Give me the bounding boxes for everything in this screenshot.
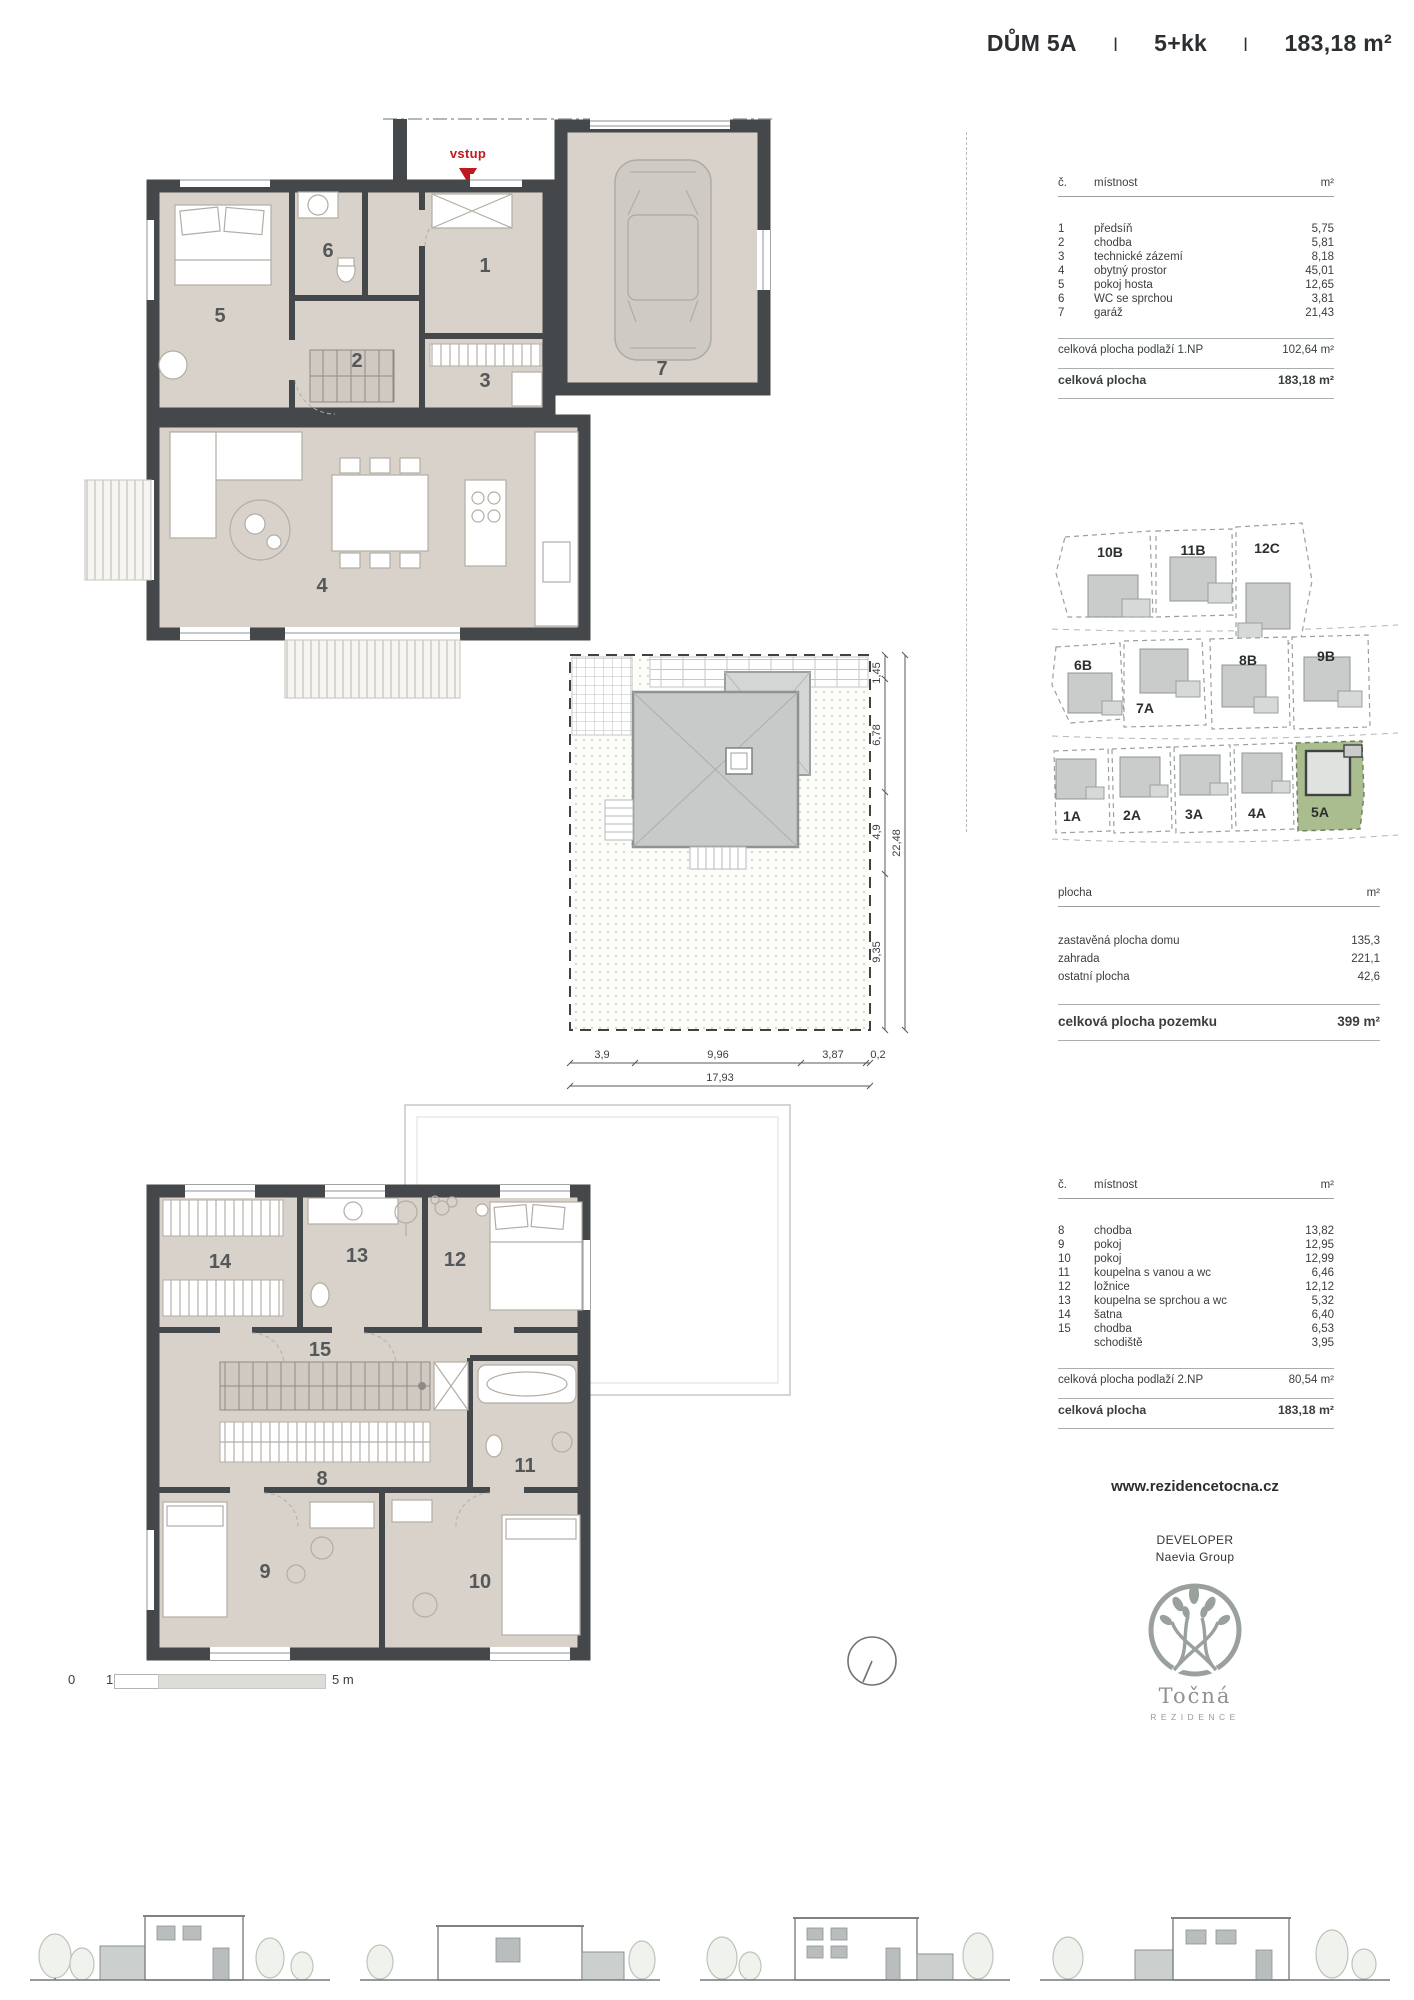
house-total-area: 183,18 m²	[1284, 30, 1392, 57]
total-value: 399 m²	[1280, 1015, 1380, 1029]
total-row: celková plocha 183,18 m²	[1058, 1399, 1334, 1422]
svg-text:12C: 12C	[1254, 540, 1280, 556]
table-row: 8chodba13,82	[1058, 1224, 1334, 1238]
lot-8B: 8B	[1210, 637, 1290, 729]
table-rows: 1předsíň5,75 2chodba5,81 3technické záze…	[1058, 222, 1334, 320]
upper-floor-body: 14 13 12 15 8 11 9 10	[141, 1185, 590, 1660]
divider	[1058, 1428, 1334, 1429]
table-row: 6WC se sprchou3,81	[1058, 292, 1334, 306]
table-row: 10pokoj12,99	[1058, 1252, 1334, 1266]
scale-tick-1: 1	[106, 1672, 113, 1687]
scale-end: 5 m	[332, 1672, 354, 1687]
terrace-south	[285, 640, 460, 698]
total-row: celková plocha 183,18 m²	[1058, 369, 1334, 392]
room-label-12: 12	[444, 1249, 466, 1271]
svg-text:2A: 2A	[1123, 807, 1141, 823]
steps-west	[605, 800, 633, 840]
lot-5A-highlighted: 5A	[1296, 741, 1364, 831]
col-plocha: plocha	[1058, 886, 1318, 900]
room-label-3: 3	[479, 370, 490, 392]
room-label-13: 13	[346, 1245, 368, 1267]
lot-2A: 2A	[1112, 747, 1172, 833]
developer-block: DEVELOPER Naevia Group	[1040, 1532, 1350, 1566]
table-row: 3technické zázemí8,18	[1058, 250, 1334, 264]
tocna-logo-icon	[1130, 1578, 1260, 1682]
table-row: 12ložnice12,12	[1058, 1280, 1334, 1294]
table-row: zahrada221,1	[1058, 950, 1380, 968]
road-line	[1052, 733, 1398, 739]
svg-text:9B: 9B	[1317, 648, 1335, 664]
lot-3A: 3A	[1174, 745, 1232, 833]
page-title: DŮM 5A I 5+kk I 183,18 m²	[987, 30, 1392, 57]
website-url[interactable]: www.rezidencetocna.cz	[1040, 1478, 1350, 1495]
col-room: místnost	[1094, 176, 1272, 190]
svg-text:4A: 4A	[1248, 805, 1266, 821]
col-number: č.	[1058, 1178, 1094, 1192]
subtotal-label: celková plocha podlaží 1.NP	[1058, 343, 1234, 357]
svg-text:3A: 3A	[1185, 806, 1203, 822]
site-location-map: 10B 11B 12C 6B 7A 8B 9B 1A 2A	[1050, 495, 1400, 855]
lot-11B: 11B	[1156, 529, 1233, 617]
developer-label: DEVELOPER	[1040, 1532, 1350, 1549]
subtotal-row: celková plocha podlaží 1.NP 102,64 m²	[1058, 339, 1334, 362]
room-label-2: 2	[351, 350, 362, 372]
table-row: 1předsíň5,75	[1058, 222, 1334, 236]
divider	[1058, 1040, 1380, 1041]
developer-name: Naevia Group	[1040, 1549, 1350, 1566]
total-row: celková plocha pozemku 399 m²	[1058, 1005, 1380, 1034]
divider	[1058, 906, 1380, 907]
room-label-8: 8	[316, 1468, 327, 1490]
dim-h-4: 0,2	[870, 1049, 885, 1061]
plot-area-table: plocha m² zastavěná plocha domu135,3 zah…	[1058, 886, 1380, 1041]
dim-h-1: 3,9	[594, 1049, 609, 1061]
lot-9B: 9B	[1292, 635, 1370, 729]
svg-text:6B: 6B	[1074, 657, 1092, 673]
main-roof	[633, 692, 798, 847]
floorplan-1np: vstup	[70, 110, 800, 710]
room-table-1np: č. místnost m² 1předsíň5,75 2chodba5,81 …	[1058, 176, 1334, 399]
col-unit: m²	[1272, 1178, 1334, 1192]
entrance-label: vstup	[450, 146, 486, 161]
porch-wall	[393, 119, 407, 185]
total-value: 183,18 m²	[1234, 373, 1334, 387]
total-label: celková plocha	[1058, 1403, 1234, 1417]
svg-text:7A: 7A	[1136, 700, 1154, 716]
table-row: 9pokoj12,95	[1058, 1238, 1334, 1252]
logo-subtitle: REZIDENCE	[1040, 1712, 1350, 1722]
svg-text:5A: 5A	[1311, 804, 1329, 820]
col-room: místnost	[1094, 1178, 1272, 1192]
elevation-1	[30, 1888, 330, 1993]
table-header: č. místnost m²	[1058, 176, 1334, 190]
dim-v-3: 4,9	[871, 824, 883, 839]
table-row: 11koupelna s vanou a wc6,46	[1058, 1266, 1334, 1280]
total-label: celková plocha pozemku	[1058, 1015, 1280, 1029]
lot-4A: 4A	[1234, 743, 1294, 831]
col-unit: m²	[1318, 886, 1380, 900]
dim-v-2: 6,78	[871, 724, 883, 745]
table-row: 2chodba5,81	[1058, 236, 1334, 250]
skylight	[726, 748, 752, 774]
table-row: 5pokoj hosta12,65	[1058, 278, 1334, 292]
dim-h-total: 17,93	[706, 1072, 734, 1084]
terrace-west	[85, 480, 151, 580]
dim-v-1: 1,45	[871, 662, 883, 683]
table-row: zastavěná plocha domu135,3	[1058, 932, 1380, 950]
logo-leaves	[1158, 1584, 1232, 1627]
room-table-2np: č. místnost m² 8chodba13,82 9pokoj12,95 …	[1058, 1178, 1334, 1429]
divider	[1058, 1198, 1334, 1199]
title-separator-1: I	[1114, 35, 1117, 57]
lot-6B: 6B	[1052, 643, 1124, 723]
table-header: plocha m²	[1058, 886, 1380, 900]
dim-h-3: 3,87	[822, 1049, 843, 1061]
dashed-separator	[966, 132, 967, 832]
table-rows: zastavěná plocha domu135,3 zahrada221,1 …	[1058, 932, 1380, 986]
table-row: 14šatna6,40	[1058, 1308, 1334, 1322]
dim-v-total: 22,48	[891, 829, 903, 857]
col-number: č.	[1058, 176, 1094, 190]
dim-h-2: 9,96	[707, 1049, 728, 1061]
room-label-4: 4	[316, 575, 328, 597]
scale-segment-2	[158, 1674, 326, 1689]
subtotal-value: 102,64 m²	[1234, 343, 1334, 357]
room-label-6: 6	[322, 240, 333, 262]
scale-segment-1	[114, 1674, 160, 1689]
orientation-icon	[845, 1634, 899, 1688]
lot-10B: 10B	[1056, 531, 1153, 617]
floorplan-2np: 14 13 12 15 8 11 9 10	[70, 1090, 800, 1690]
room-label-9: 9	[259, 1561, 270, 1583]
table-row: 4obytný prostor45,01	[1058, 264, 1334, 278]
logo-title: Točná	[1040, 1684, 1350, 1708]
svg-text:10B: 10B	[1097, 544, 1123, 560]
table-row: 15chodba6,53	[1058, 1322, 1334, 1336]
col-unit: m²	[1272, 176, 1334, 190]
room-label-5: 5	[214, 305, 225, 327]
living-block: 4	[141, 421, 584, 640]
lot-7A: 7A	[1124, 639, 1206, 727]
total-value: 183,18 m²	[1234, 1403, 1334, 1417]
wardrobe-icon	[432, 194, 512, 228]
elevation-3	[700, 1888, 1010, 1993]
subtotal-value: 80,54 m²	[1234, 1373, 1334, 1387]
table-row: schodiště3,95	[1058, 1336, 1334, 1350]
house-id: DŮM 5A	[987, 30, 1077, 57]
table-row: ostatní plocha42,6	[1058, 968, 1380, 986]
road-line	[1052, 835, 1398, 842]
dim-v-4: 9,35	[871, 941, 883, 962]
divider	[1058, 196, 1334, 197]
corridor-wardrobe-icon	[220, 1422, 430, 1462]
car-icon	[615, 160, 711, 360]
lot-1A: 1A	[1054, 749, 1110, 833]
title-separator-2: I	[1244, 35, 1247, 57]
house-layout: 5+kk	[1154, 30, 1207, 57]
paved-area	[572, 657, 632, 735]
lot-12C: 12C	[1236, 523, 1312, 645]
divider	[1058, 398, 1334, 399]
upper-rooms-block: 5 6 1 2 3	[141, 174, 549, 414]
room-label-1: 1	[479, 255, 490, 277]
room-label-11: 11	[514, 1455, 535, 1477]
dining-table-icon	[332, 458, 428, 568]
table-row: 13koupelna se sprchou a wc5,32	[1058, 1294, 1334, 1308]
room-label-14: 14	[209, 1251, 232, 1273]
scale-bar: 0 1 2 5 m	[68, 1670, 388, 1694]
room-label-10: 10	[469, 1571, 491, 1593]
room-label-7: 7	[656, 358, 667, 380]
svg-text:1A: 1A	[1063, 808, 1081, 824]
site-plan: 1,45 6,78 4,9 9,35 22,48 3,9 9,96 3,87 0…	[540, 640, 920, 1110]
scale-tick-0: 0	[68, 1672, 75, 1687]
table-header: č. místnost m²	[1058, 1178, 1334, 1192]
svg-text:8B: 8B	[1239, 652, 1257, 668]
garage-block	[561, 114, 770, 389]
subtotal-row: celková plocha podlaží 2.NP 80,54 m²	[1058, 1369, 1334, 1392]
elevation-4	[1040, 1888, 1390, 1993]
subtotal-label: celková plocha podlaží 2.NP	[1058, 1373, 1234, 1387]
svg-text:11B: 11B	[1181, 542, 1206, 558]
road-line	[1052, 625, 1398, 631]
room-label-15: 15	[309, 1339, 331, 1361]
elevation-2	[360, 1888, 660, 1993]
table-rows: 8chodba13,82 9pokoj12,95 10pokoj12,99 11…	[1058, 1224, 1334, 1350]
table-row: 7garáž21,43	[1058, 306, 1334, 320]
total-label: celková plocha	[1058, 373, 1234, 387]
